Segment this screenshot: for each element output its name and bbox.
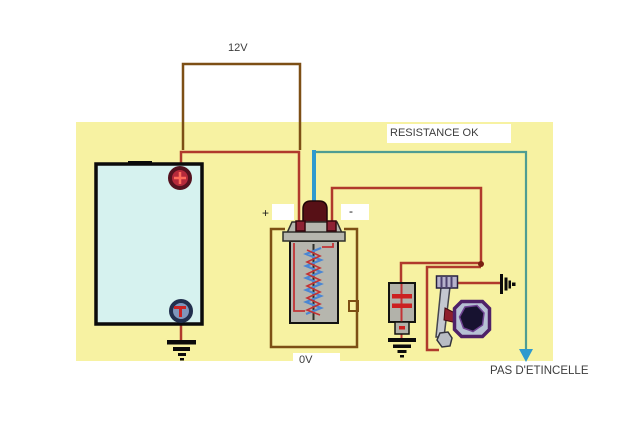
battery xyxy=(96,161,202,324)
ground-icon-battery xyxy=(167,340,196,361)
battery-negative-terminal xyxy=(171,301,191,321)
resistance-status-label: RESISTANCE OK xyxy=(387,124,511,142)
spark-gap-icon xyxy=(500,274,516,294)
resistance-status-patch: RESISTANCE OK xyxy=(387,124,511,143)
voltmeter-loop-12v xyxy=(183,64,300,150)
spark-path-wire xyxy=(314,152,526,350)
ground-icon-condenser xyxy=(388,338,416,358)
coil-positive-bolt xyxy=(296,221,305,231)
spark-result-label: PAS D'ETINCELLE xyxy=(490,364,589,379)
wire-junction-dot xyxy=(478,261,484,267)
battery-positive-terminal xyxy=(170,168,190,188)
coil-negative-patch: - xyxy=(341,204,369,220)
points-pivot xyxy=(437,332,452,347)
condenser-icon xyxy=(389,283,415,338)
coil-negative-label: - xyxy=(341,204,369,219)
wire-coil-to-junction xyxy=(332,188,481,262)
ignition-diagram: 12V RESISTANCE OK + - 0V PAS D'ETINCELLE xyxy=(0,0,640,434)
supply-voltage-label: 12V xyxy=(228,41,248,56)
coil-voltage-patch: 0V xyxy=(293,353,340,368)
distributor-cam-icon xyxy=(455,302,490,337)
coil-flange-bar xyxy=(283,232,345,241)
no-spark-arrow-icon xyxy=(519,349,533,362)
coil-positive-patch xyxy=(272,204,294,220)
coil-voltage-label: 0V xyxy=(293,353,340,367)
coil-negative-bolt xyxy=(327,221,336,231)
coil-cap xyxy=(303,201,327,223)
coil-positive-label: + xyxy=(262,206,269,221)
